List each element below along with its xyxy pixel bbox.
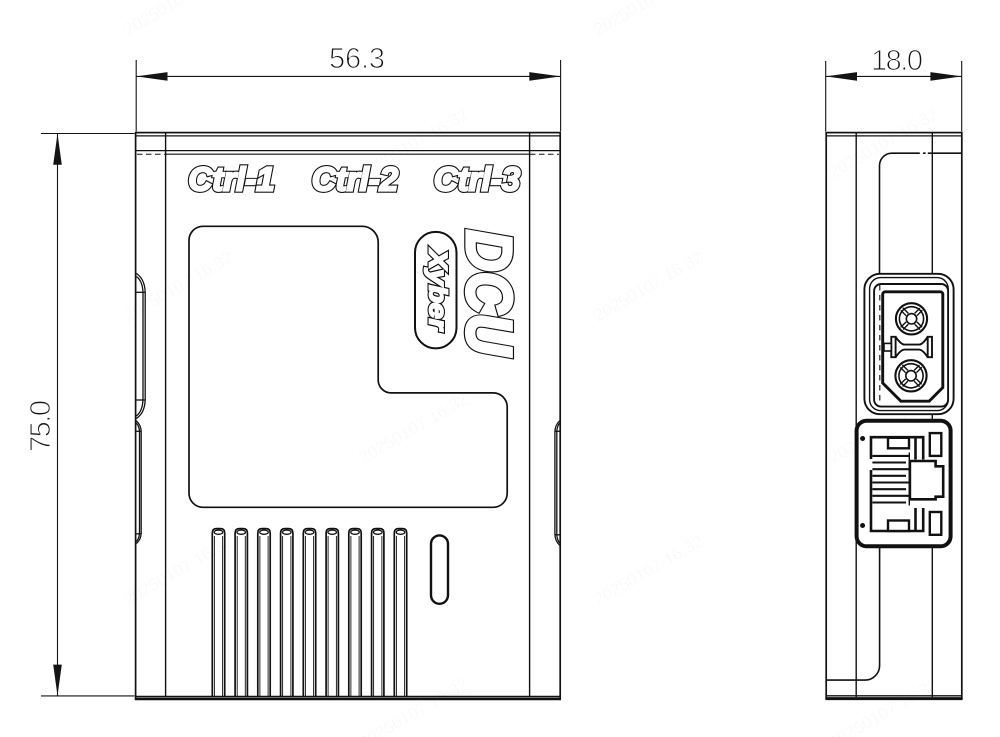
svg-text:Xyber: Xyber — [424, 248, 452, 332]
svg-text:DCU: DCU — [453, 230, 525, 357]
svg-text:Ctrl-1: Ctrl-1 — [188, 161, 274, 198]
svg-text:20250107 16:32: 20250107 16:32 — [121, 248, 237, 326]
svg-text:56.3: 56.3 — [329, 43, 385, 75]
svg-text:20250107 16:32: 20250107 16:32 — [0, 390, 1, 468]
svg-text:75.0: 75.0 — [25, 400, 57, 452]
svg-text:20250107 16:32: 20250107 16:32 — [0, 105, 1, 183]
svg-text:20250107 16:32: 20250107 16:32 — [826, 675, 942, 737]
svg-text:20250107 16:32: 20250107 16:32 — [0, 675, 1, 737]
svg-text:Ctrl-2: Ctrl-2 — [312, 161, 399, 198]
svg-text:20250107 16:32: 20250107 16:32 — [826, 105, 942, 183]
svg-text:20250107 16:32: 20250107 16:32 — [121, 0, 237, 39]
svg-text:20250107 16:32: 20250107 16:32 — [356, 675, 472, 737]
svg-text:20250107 16:32: 20250107 16:32 — [121, 532, 237, 610]
svg-text:Ctrl-3: Ctrl-3 — [434, 161, 520, 198]
svg-text:20250107 16:32: 20250107 16:32 — [591, 0, 707, 39]
svg-text:20250107 16:32: 20250107 16:32 — [356, 390, 472, 468]
svg-text:18.0: 18.0 — [871, 45, 923, 77]
svg-text:20250107 16:32: 20250107 16:32 — [591, 248, 707, 326]
svg-text:20250107 16:32: 20250107 16:32 — [591, 532, 707, 610]
